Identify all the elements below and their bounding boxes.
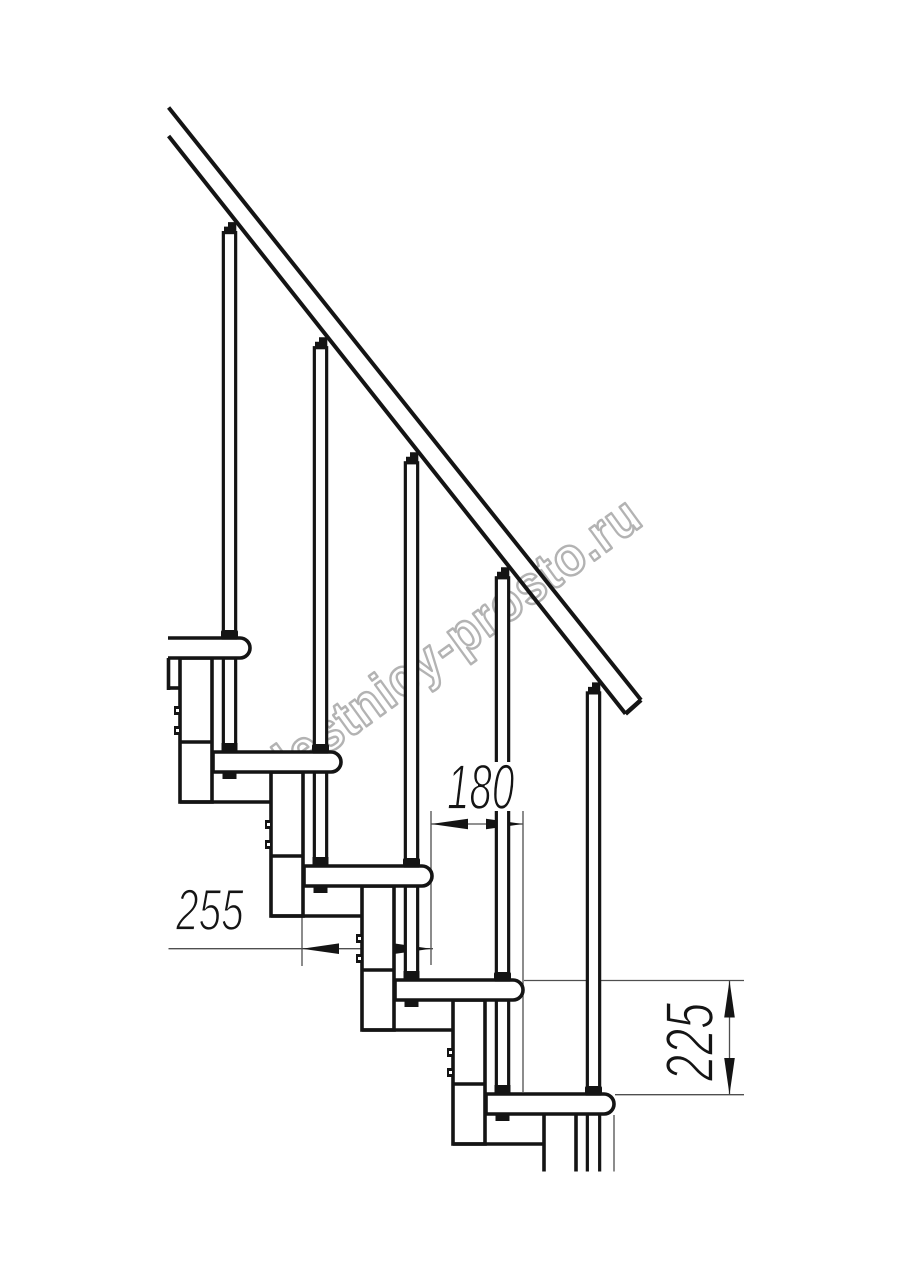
svg-text:225: 225: [652, 1002, 728, 1081]
svg-text:255: 255: [175, 878, 244, 943]
svg-text:180: 180: [447, 753, 514, 824]
